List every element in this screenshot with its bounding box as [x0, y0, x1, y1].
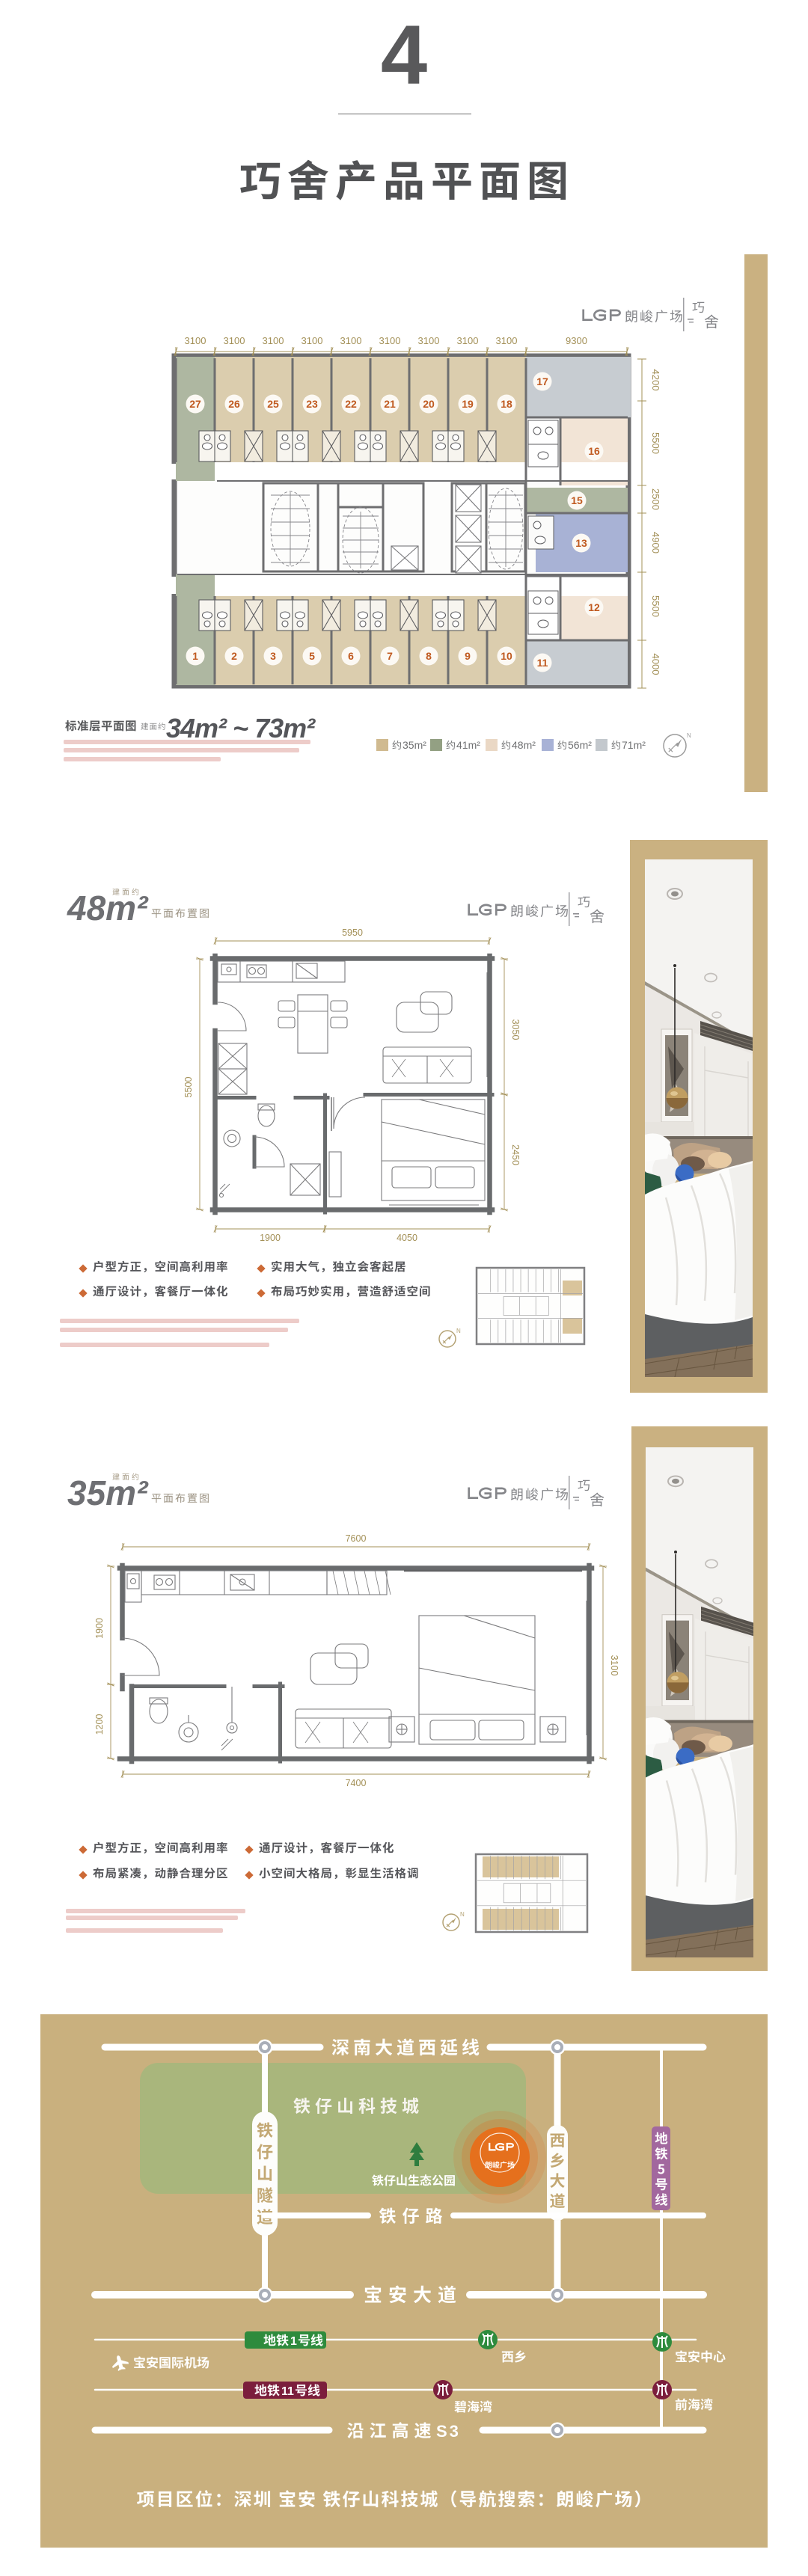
svg-text:N: N: [460, 1911, 465, 1918]
svg-text:3: 3: [270, 650, 276, 662]
svg-text:16: 16: [588, 445, 600, 457]
svg-text:22: 22: [345, 398, 357, 410]
svg-text:5500: 5500: [650, 595, 661, 617]
svg-text:3100: 3100: [418, 335, 440, 346]
svg-text:7600: 7600: [346, 1533, 367, 1544]
svg-text:11: 11: [281, 2385, 294, 2398]
svg-text:1900: 1900: [94, 1618, 105, 1639]
svg-text:11: 11: [537, 657, 548, 669]
svg-text:3100: 3100: [496, 335, 518, 346]
svg-text:3100: 3100: [379, 335, 401, 346]
svg-text:1900: 1900: [260, 1233, 281, 1243]
svg-text:13: 13: [575, 537, 587, 549]
svg-text:10: 10: [501, 650, 512, 662]
svg-text:1: 1: [192, 650, 198, 662]
svg-text:5950: 5950: [342, 927, 363, 938]
svg-text:71m²: 71m²: [622, 739, 646, 751]
svg-text:9300: 9300: [566, 335, 587, 346]
svg-text:N: N: [456, 1328, 461, 1334]
svg-text:20: 20: [423, 398, 435, 410]
svg-text:35m²: 35m²: [67, 1473, 149, 1512]
svg-text:N: N: [687, 732, 691, 739]
svg-text:4050: 4050: [397, 1233, 417, 1243]
svg-text:7400: 7400: [346, 1778, 367, 1788]
svg-text:5: 5: [309, 650, 315, 662]
svg-text:4900: 4900: [650, 532, 661, 553]
svg-text:4200: 4200: [650, 369, 661, 391]
svg-text:21: 21: [384, 398, 396, 410]
svg-text:3100: 3100: [185, 335, 206, 346]
svg-text:25: 25: [267, 398, 279, 410]
svg-text:3100: 3100: [263, 335, 284, 346]
svg-text:41m²: 41m²: [456, 739, 480, 751]
svg-text:27: 27: [189, 398, 201, 410]
svg-text:S3: S3: [436, 2422, 461, 2441]
svg-text:3100: 3100: [340, 335, 362, 346]
svg-text:9: 9: [465, 650, 471, 662]
svg-text:1: 1: [290, 2335, 297, 2348]
svg-text:35m²: 35m²: [403, 739, 426, 751]
svg-text:8: 8: [426, 650, 432, 662]
svg-text:19: 19: [462, 398, 474, 410]
svg-text:4000: 4000: [650, 654, 661, 675]
svg-text:12: 12: [588, 601, 600, 613]
svg-text:2500: 2500: [650, 488, 661, 510]
svg-text:6: 6: [348, 650, 354, 662]
svg-text:48m²: 48m²: [67, 889, 149, 927]
svg-text:4: 4: [381, 8, 427, 102]
svg-text:1200: 1200: [94, 1714, 105, 1735]
svg-text:7: 7: [387, 650, 393, 662]
svg-text:17: 17: [536, 375, 548, 387]
svg-text:34m² ~ 73m²: 34m² ~ 73m²: [166, 713, 316, 743]
svg-text:3050: 3050: [510, 1019, 521, 1040]
svg-text:5500: 5500: [183, 1077, 194, 1098]
svg-text:23: 23: [306, 398, 318, 410]
svg-text:48m²: 48m²: [512, 739, 536, 751]
svg-text:15: 15: [571, 494, 583, 506]
svg-text:26: 26: [228, 398, 240, 410]
svg-text:56m²: 56m²: [568, 739, 592, 751]
svg-text:3100: 3100: [457, 335, 479, 346]
svg-text:18: 18: [501, 398, 512, 410]
svg-text:3100: 3100: [302, 335, 323, 346]
svg-text:2: 2: [231, 650, 237, 662]
svg-text:3100: 3100: [609, 1655, 619, 1676]
svg-text:3100: 3100: [224, 335, 245, 346]
svg-text:2450: 2450: [510, 1144, 521, 1165]
svg-text:5500: 5500: [650, 432, 661, 454]
